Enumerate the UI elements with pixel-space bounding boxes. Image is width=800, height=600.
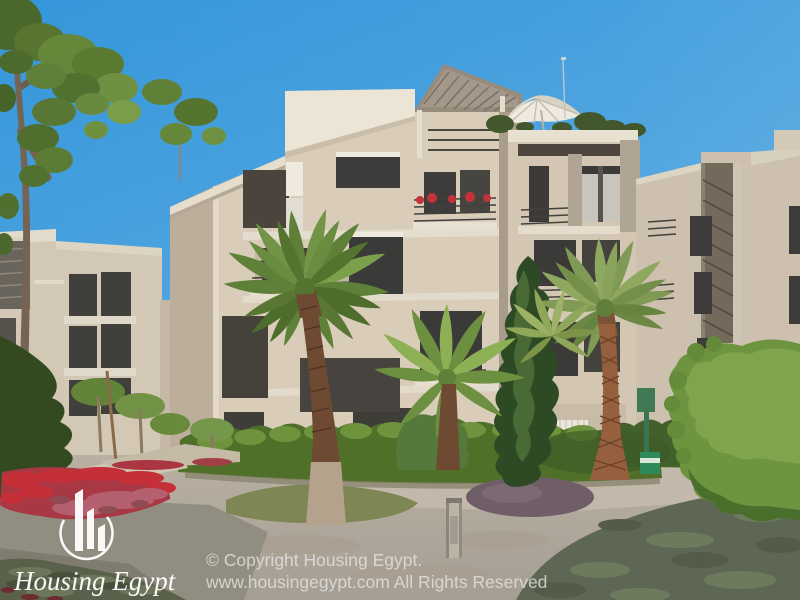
svg-text:© Copyright Housing Egypt.: © Copyright Housing Egypt. [206, 550, 422, 570]
svg-text:www.housingegypt.com All Right: www.housingegypt.com All Rights Reserved [205, 572, 547, 592]
svg-text:Housing Egypt: Housing Egypt [13, 566, 177, 596]
